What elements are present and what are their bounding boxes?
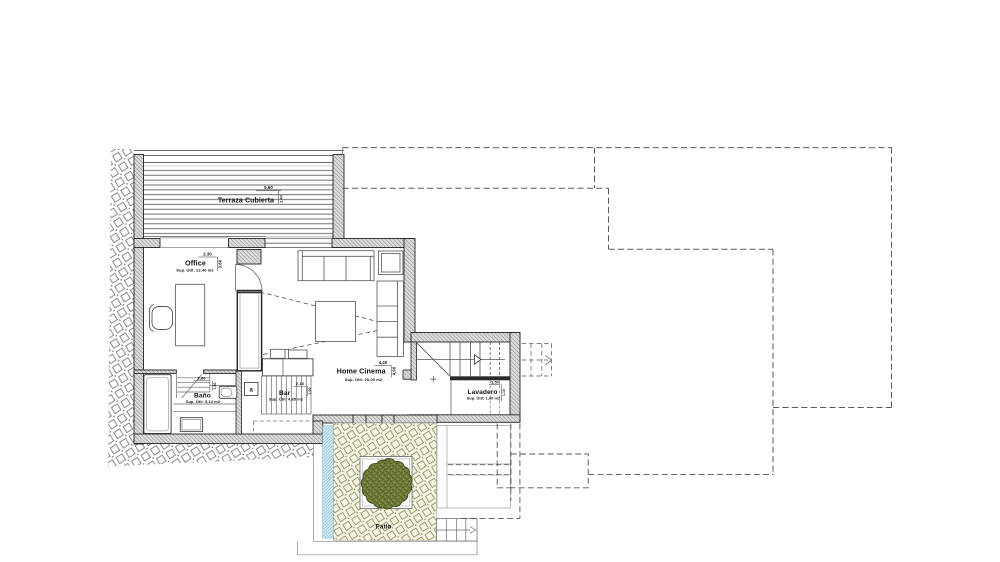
svg-text:1,80: 1,80 [213, 382, 217, 389]
svg-text:Lavadero: Lavadero [467, 389, 497, 396]
svg-text:1,50: 1,50 [491, 380, 499, 384]
svg-text:3,60: 3,60 [197, 376, 206, 381]
svg-text:Sup. Útil: 4,65 m2: Sup. Útil: 4,65 m2 [269, 396, 304, 401]
svg-text:4,90: 4,90 [392, 366, 397, 375]
svg-text:Home Cinema: Home Cinema [337, 367, 387, 376]
svg-text:Patio: Patio [375, 524, 391, 531]
svg-text:3.60: 3.60 [218, 259, 223, 268]
svg-text:1,00: 1,00 [308, 387, 312, 394]
svg-text:Sup. Útil: 20,00 m2: Sup. Útil: 20,00 m2 [345, 377, 383, 382]
svg-text:2.30: 2.30 [203, 252, 212, 257]
svg-text:4,40: 4,40 [379, 360, 388, 365]
svg-text:a: a [249, 388, 253, 394]
svg-text:2,10: 2,10 [296, 381, 305, 386]
svg-text:Terraza Cubierta: Terraza Cubierta [218, 198, 274, 205]
svg-text:2.40: 2.40 [280, 195, 284, 202]
svg-text:1,10: 1,10 [502, 389, 506, 396]
svg-text:5.60: 5.60 [264, 185, 273, 190]
svg-text:Sup. Útil: 12,40 m2: Sup. Útil: 12,40 m2 [176, 268, 214, 273]
svg-text:Sup. Útil: 1,60 m2: Sup. Útil: 1,60 m2 [467, 395, 500, 400]
svg-text:Office: Office [185, 259, 206, 268]
svg-text:Sup. Útil: 5,12 m2: Sup. Útil: 5,12 m2 [186, 399, 221, 404]
